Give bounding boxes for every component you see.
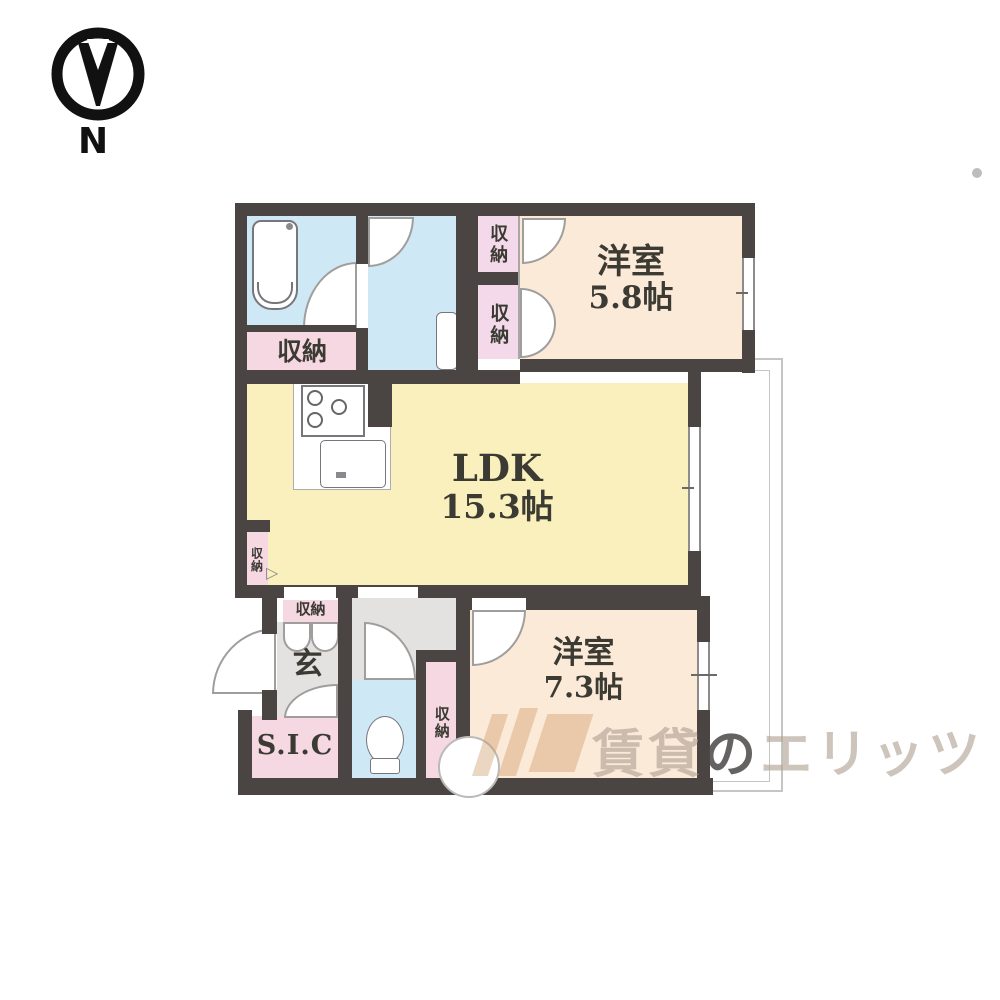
entrance-door-arc bbox=[212, 628, 276, 694]
door-opening bbox=[284, 587, 336, 598]
wall bbox=[520, 359, 755, 372]
door-swing-arrow: ▷ bbox=[266, 564, 278, 582]
kitchen-sink bbox=[320, 440, 386, 488]
door-opening bbox=[472, 598, 526, 610]
wall bbox=[235, 203, 247, 373]
ldk-label: LDK 15.3帖 bbox=[387, 448, 607, 526]
bathtub-faucet bbox=[286, 223, 293, 230]
watermark-part2: の bbox=[704, 725, 760, 785]
closet-front-line bbox=[518, 216, 520, 359]
watermark-part1: 賃貸 bbox=[592, 725, 704, 785]
storage-label: 収納 bbox=[249, 536, 262, 584]
door-opening bbox=[358, 587, 418, 598]
storage-label: 収納 bbox=[247, 338, 357, 366]
toilet-bowl bbox=[366, 716, 404, 764]
wall bbox=[742, 203, 755, 258]
storage-label: 収納 bbox=[487, 219, 507, 271]
north-label: N bbox=[78, 122, 108, 162]
bedroom-top-label: 洋室 5.8帖 bbox=[521, 243, 741, 316]
wall bbox=[456, 203, 478, 373]
storage-label: 収納 bbox=[283, 601, 338, 618]
wall bbox=[240, 520, 270, 532]
north-compass-icon bbox=[50, 26, 146, 122]
wall bbox=[338, 596, 352, 788]
window bbox=[697, 642, 710, 710]
stove-burner-2 bbox=[307, 412, 323, 428]
wall bbox=[262, 690, 277, 720]
watermark-text: 賃貸のエリッツ bbox=[592, 712, 984, 787]
decorative-dot bbox=[972, 168, 982, 178]
wall bbox=[416, 650, 458, 662]
window bbox=[688, 427, 701, 551]
wall bbox=[235, 373, 247, 598]
bedroom-bottom-name: 洋室 bbox=[470, 636, 697, 671]
washroom-sink bbox=[436, 312, 458, 370]
storage-label: 収納 bbox=[487, 295, 508, 355]
entrance-label: 玄 bbox=[277, 648, 338, 682]
bedroom-top-name: 洋室 bbox=[521, 243, 741, 281]
wall bbox=[478, 272, 519, 285]
stove-burner-3 bbox=[331, 399, 347, 415]
wall bbox=[356, 328, 368, 373]
watermark-part3: エリッツ bbox=[760, 725, 984, 785]
wall bbox=[235, 203, 755, 216]
wall bbox=[368, 377, 392, 427]
shoe-closet-label: S.I.C bbox=[250, 731, 340, 761]
wall bbox=[247, 325, 356, 332]
wall bbox=[416, 660, 426, 780]
ldk-name: LDK bbox=[387, 448, 607, 489]
wall bbox=[356, 216, 368, 264]
bedroom-top-area: 5.8帖 bbox=[521, 281, 741, 316]
window-tick bbox=[682, 487, 694, 489]
bedroom-bottom-area: 7.3帖 bbox=[470, 671, 697, 703]
toilet-tank bbox=[370, 758, 400, 774]
ldk-area: 15.3帖 bbox=[387, 489, 607, 526]
stove-burner-1 bbox=[307, 390, 323, 406]
wall bbox=[262, 596, 277, 634]
wall bbox=[688, 372, 701, 427]
bedroom-bottom-label: 洋室 7.3帖 bbox=[470, 636, 697, 703]
wall bbox=[697, 596, 710, 642]
kitchen-sink-faucet bbox=[336, 472, 346, 478]
window bbox=[742, 258, 755, 330]
